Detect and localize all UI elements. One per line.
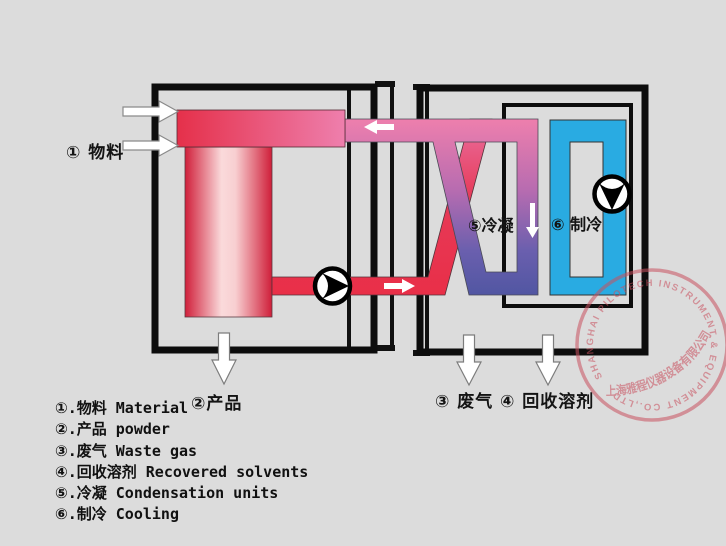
legend: ①.物料 Material ②.产品 powder ③.废气 Waste gas… [55, 398, 308, 526]
refrigeration-pump-icon [595, 177, 630, 212]
label-material: ① 物料 [66, 138, 124, 163]
legend-item-product: ②.产品 powder [55, 419, 308, 440]
air-distributor-bar [177, 110, 345, 147]
label-cooling: ⑥ 制冷 [551, 211, 602, 235]
legend-item-solvents: ④.回收溶剂 Recovered solvents [55, 462, 308, 483]
blower-pump-icon [315, 269, 350, 304]
legend-item-condensation: ⑤.冷凝 Condensation units [55, 483, 308, 504]
process-flow-diagram: ① 物料 ②产品 ③ 废气 ④ 回收溶剂 ⑤冷凝 ⑥ 制冷 ①.物料 Mater… [0, 0, 726, 546]
label-condensation: ⑤冷凝 [468, 212, 514, 236]
legend-item-cooling: ⑥.制冷 Cooling [55, 504, 308, 525]
legend-item-material: ①.物料 Material [55, 398, 308, 419]
wall-stub-bottom-left [375, 345, 395, 351]
drying-cylinder [185, 147, 272, 317]
legend-item-waste-gas: ③.废气 Waste gas [55, 441, 308, 462]
wall-stub-top-left [375, 81, 395, 87]
label-waste-gas: ③ 废气 [435, 387, 493, 412]
label-recovered-solvents: ④ 回收溶剂 [500, 387, 594, 412]
